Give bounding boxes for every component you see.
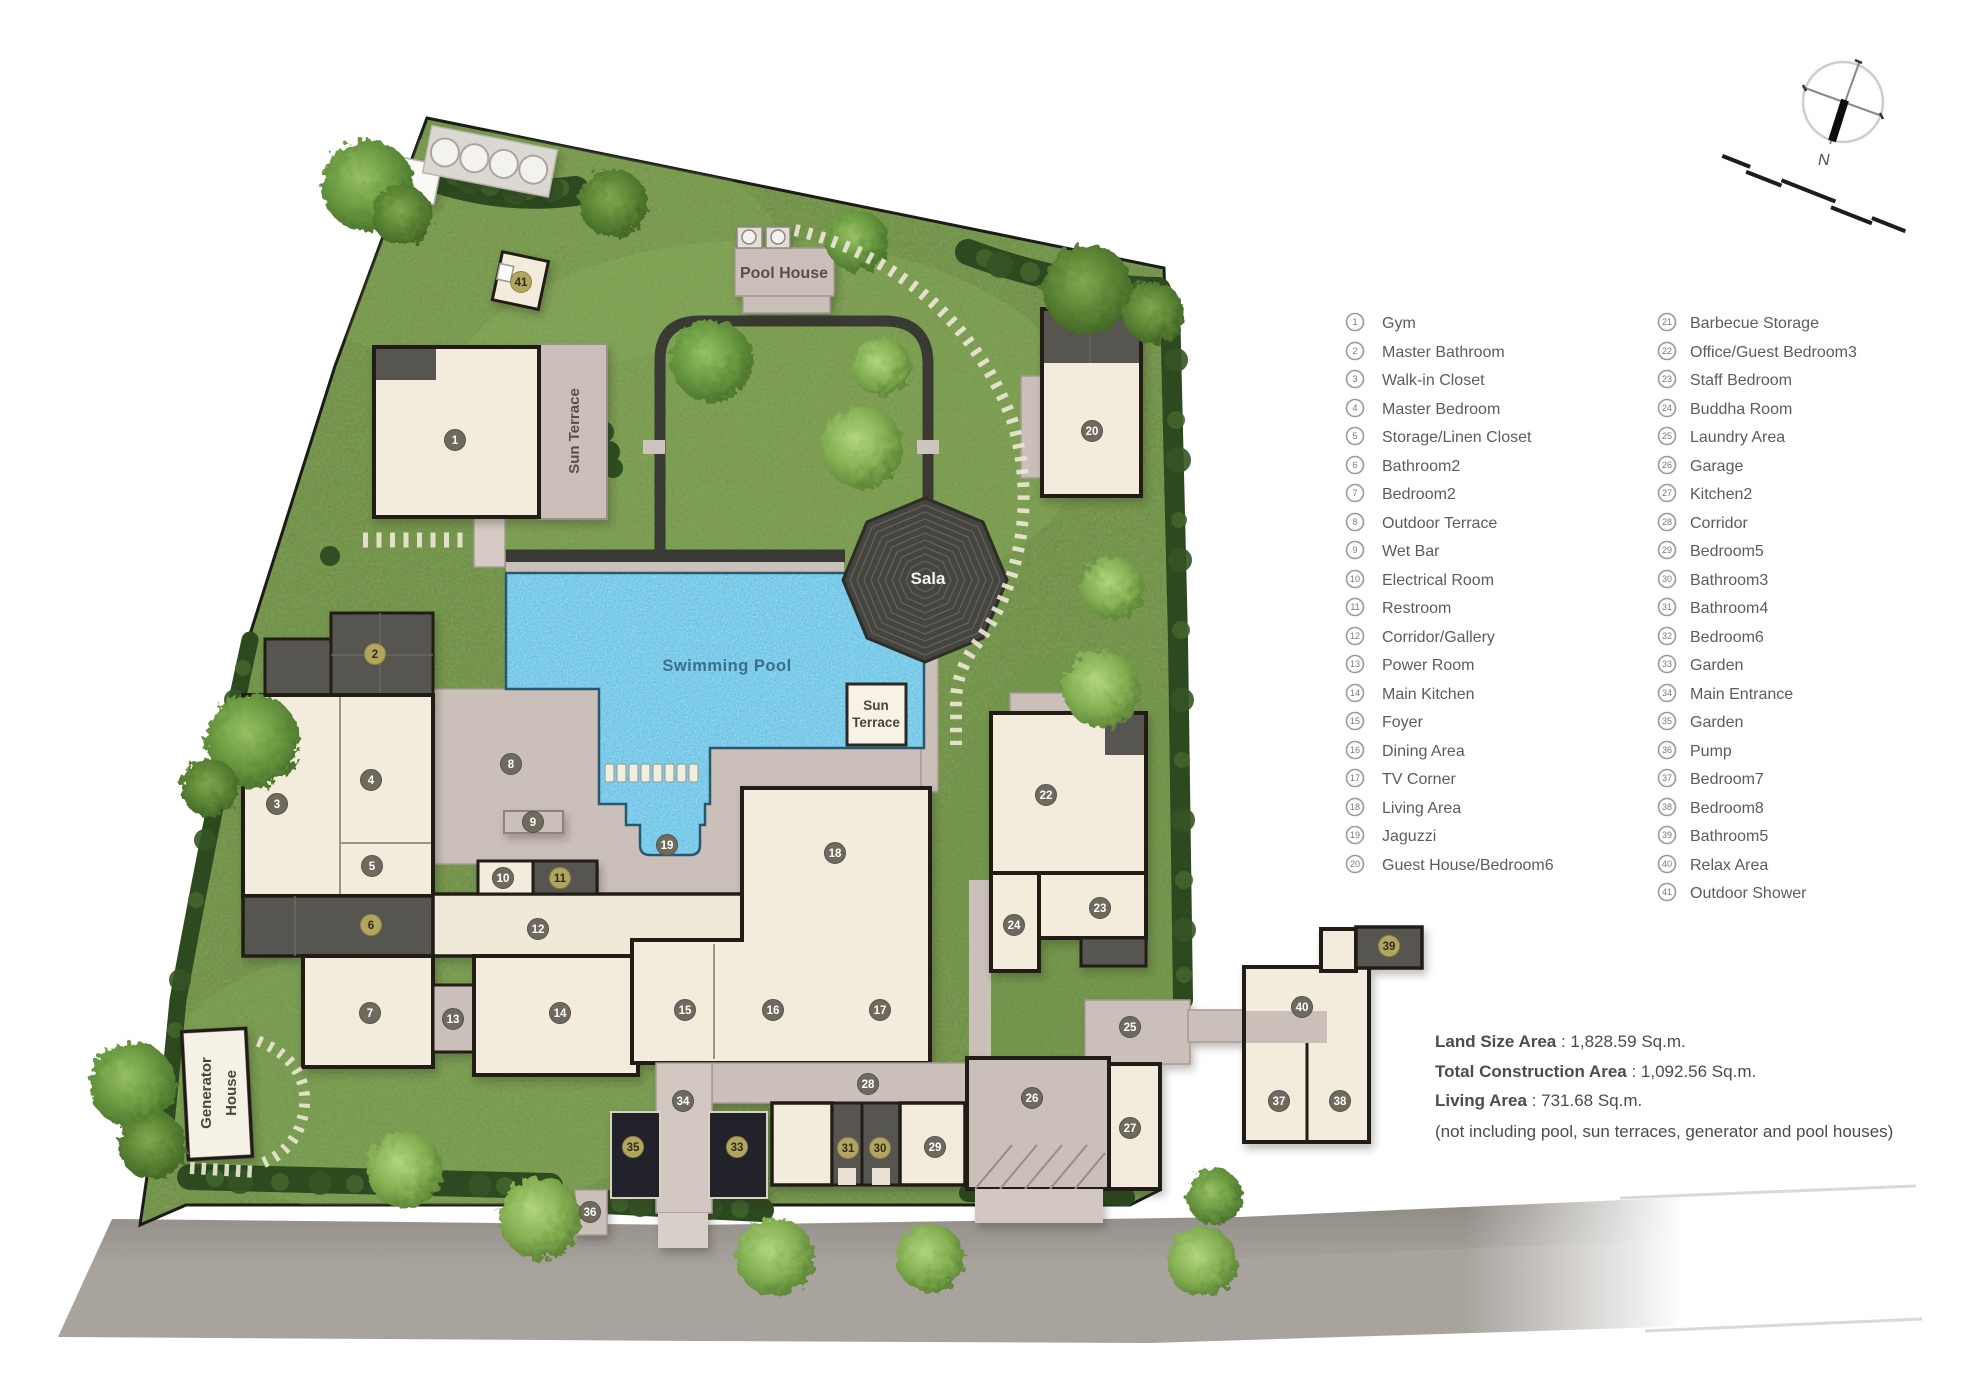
svg-text:Bathroom2: Bathroom2 (1382, 458, 1460, 475)
svg-text:Bathroom3: Bathroom3 (1690, 572, 1768, 589)
svg-text:Storage/Linen Closet: Storage/Linen Closet (1382, 429, 1532, 446)
svg-text:15: 15 (679, 1005, 692, 1017)
svg-text:Staff Bedroom: Staff Bedroom (1690, 372, 1792, 389)
svg-text:25: 25 (1662, 431, 1672, 441)
svg-text:2: 2 (372, 649, 378, 661)
svg-text:38: 38 (1662, 802, 1672, 812)
svg-text:33: 33 (731, 1142, 744, 1154)
svg-text:7: 7 (1352, 488, 1357, 498)
svg-text:Office/Guest Bedroom3: Office/Guest Bedroom3 (1690, 344, 1857, 361)
svg-text:Garden: Garden (1690, 714, 1743, 731)
svg-text:5: 5 (369, 861, 376, 873)
svg-text:Bedroom8: Bedroom8 (1690, 800, 1764, 817)
svg-text:26: 26 (1662, 460, 1672, 470)
svg-text:Master Bedroom: Master Bedroom (1382, 401, 1500, 418)
svg-text:37: 37 (1273, 1096, 1286, 1108)
svg-text:18: 18 (829, 848, 842, 860)
svg-text:37: 37 (1662, 773, 1672, 783)
svg-text:2: 2 (1352, 346, 1357, 356)
svg-text:Land Size Area : 1,828.59 Sq.m: Land Size Area : 1,828.59 Sq.m. (1435, 1032, 1686, 1051)
svg-text:Pool House: Pool House (740, 265, 828, 282)
svg-text:10: 10 (1350, 574, 1360, 584)
svg-text:6: 6 (368, 920, 374, 932)
svg-text:Gym: Gym (1382, 315, 1416, 332)
svg-text:Pump: Pump (1690, 743, 1732, 760)
svg-text:11: 11 (554, 873, 567, 885)
svg-text:16: 16 (767, 1005, 780, 1017)
svg-text:Sala: Sala (911, 569, 947, 588)
svg-text:35: 35 (627, 1142, 640, 1154)
svg-text:Bathroom4: Bathroom4 (1690, 600, 1768, 617)
svg-text:28: 28 (862, 1079, 875, 1091)
svg-text:23: 23 (1662, 374, 1672, 384)
svg-text:6: 6 (1352, 460, 1357, 470)
svg-text:9: 9 (530, 817, 536, 829)
svg-text:Kitchen2: Kitchen2 (1690, 486, 1752, 503)
svg-text:Jaguzzi: Jaguzzi (1382, 828, 1436, 845)
svg-text:Restroom: Restroom (1382, 600, 1451, 617)
svg-text:Foyer: Foyer (1382, 714, 1424, 731)
svg-text:27: 27 (1662, 488, 1672, 498)
svg-text:Master Bathroom: Master Bathroom (1382, 344, 1505, 361)
svg-text:27: 27 (1124, 1123, 1137, 1135)
svg-text:4: 4 (368, 775, 375, 787)
svg-text:24: 24 (1662, 403, 1672, 413)
svg-text:34: 34 (677, 1096, 690, 1108)
svg-text:17: 17 (1350, 773, 1360, 783)
svg-text:12: 12 (1350, 631, 1360, 641)
svg-text:Bedroom2: Bedroom2 (1382, 486, 1456, 503)
svg-text:28: 28 (1662, 517, 1672, 527)
svg-text:House: House (223, 1070, 240, 1116)
svg-text:9: 9 (1352, 545, 1357, 555)
svg-text:18: 18 (1350, 802, 1360, 812)
svg-text:41: 41 (515, 277, 528, 289)
svg-text:Total Construction Area : 1,09: Total Construction Area : 1,092.56 Sq.m. (1435, 1062, 1756, 1081)
svg-text:34: 34 (1662, 688, 1672, 698)
svg-text:Outdoor Shower: Outdoor Shower (1690, 885, 1807, 902)
svg-text:14: 14 (1350, 688, 1360, 698)
svg-text:Electrical Room: Electrical Room (1382, 572, 1494, 589)
svg-text:Living Area: Living Area (1382, 800, 1461, 817)
svg-text:Swimming Pool: Swimming Pool (662, 657, 791, 675)
svg-text:Walk-in Closet: Walk-in Closet (1382, 372, 1485, 389)
svg-text:3: 3 (274, 799, 280, 811)
svg-text:Living Area : 731.68 Sq.m.: Living Area : 731.68 Sq.m. (1435, 1091, 1642, 1110)
svg-text:33: 33 (1662, 659, 1672, 669)
svg-text:15: 15 (1350, 716, 1360, 726)
svg-text:39: 39 (1662, 830, 1672, 840)
svg-text:Generator: Generator (198, 1057, 215, 1129)
svg-text:Bedroom6: Bedroom6 (1690, 629, 1764, 646)
svg-text:TV Corner: TV Corner (1382, 771, 1456, 788)
svg-text:Laundry Area: Laundry Area (1690, 429, 1785, 446)
svg-text:23: 23 (1094, 903, 1107, 915)
svg-text:19: 19 (661, 840, 674, 852)
svg-text:22: 22 (1662, 346, 1672, 356)
svg-text:1: 1 (1352, 317, 1357, 327)
svg-text:20: 20 (1350, 859, 1360, 869)
svg-text:Sun: Sun (863, 698, 889, 713)
svg-text:Main Entrance: Main Entrance (1690, 686, 1793, 703)
svg-text:31: 31 (1662, 602, 1672, 612)
svg-text:16: 16 (1350, 745, 1360, 755)
svg-text:25: 25 (1124, 1022, 1137, 1034)
svg-text:Wet Bar: Wet Bar (1382, 543, 1440, 560)
svg-text:17: 17 (874, 1005, 887, 1017)
svg-text:Bathroom5: Bathroom5 (1690, 828, 1768, 845)
svg-text:N: N (1818, 152, 1830, 169)
svg-text:1: 1 (452, 435, 459, 447)
svg-text:Sun Terrace: Sun Terrace (566, 388, 583, 474)
svg-text:14: 14 (554, 1008, 567, 1020)
svg-text:Terrace: Terrace (852, 715, 900, 730)
svg-text:Dining Area: Dining Area (1382, 743, 1465, 760)
svg-text:Buddha Room: Buddha Room (1690, 401, 1792, 418)
svg-text:3: 3 (1352, 374, 1357, 384)
svg-text:40: 40 (1662, 859, 1672, 869)
svg-text:Corridor: Corridor (1690, 515, 1748, 532)
svg-text:29: 29 (1662, 545, 1672, 555)
svg-text:31: 31 (842, 1143, 855, 1155)
svg-text:Power Room: Power Room (1382, 657, 1474, 674)
svg-text:38: 38 (1334, 1096, 1347, 1108)
svg-text:8: 8 (508, 759, 515, 771)
svg-text:4: 4 (1352, 403, 1357, 413)
svg-text:Garden: Garden (1690, 657, 1743, 674)
svg-text:11: 11 (1350, 602, 1359, 612)
svg-text:13: 13 (447, 1014, 460, 1026)
svg-text:(not including pool, sun terra: (not including pool, sun terraces, gener… (1435, 1122, 1893, 1141)
svg-text:Main Kitchen: Main Kitchen (1382, 686, 1475, 703)
svg-text:36: 36 (1662, 745, 1672, 755)
svg-text:30: 30 (874, 1143, 887, 1155)
svg-text:8: 8 (1352, 517, 1357, 527)
svg-text:21: 21 (1662, 317, 1672, 327)
svg-text:Guest House/Bedroom6: Guest House/Bedroom6 (1382, 857, 1554, 874)
svg-text:5: 5 (1352, 431, 1357, 441)
svg-text:Bedroom5: Bedroom5 (1690, 543, 1764, 560)
svg-text:22: 22 (1040, 790, 1053, 802)
svg-text:40: 40 (1296, 1002, 1309, 1014)
svg-text:32: 32 (1662, 631, 1672, 641)
svg-text:41: 41 (1662, 887, 1672, 897)
svg-text:39: 39 (1383, 941, 1396, 953)
svg-text:12: 12 (532, 924, 545, 936)
svg-text:30: 30 (1662, 574, 1672, 584)
svg-text:26: 26 (1026, 1093, 1039, 1105)
svg-text:36: 36 (584, 1207, 597, 1219)
svg-text:20: 20 (1086, 426, 1099, 438)
svg-text:Relax Area: Relax Area (1690, 857, 1768, 874)
svg-text:35: 35 (1662, 716, 1672, 726)
svg-text:Outdoor Terrace: Outdoor Terrace (1382, 515, 1497, 532)
svg-text:24: 24 (1008, 920, 1021, 932)
svg-text:19: 19 (1350, 830, 1360, 840)
svg-text:Garage: Garage (1690, 458, 1743, 475)
svg-text:13: 13 (1350, 659, 1360, 669)
svg-text:Barbecue Storage: Barbecue Storage (1690, 315, 1819, 332)
svg-text:Corridor/Gallery: Corridor/Gallery (1382, 629, 1495, 646)
svg-text:7: 7 (367, 1008, 373, 1020)
svg-text:29: 29 (929, 1142, 942, 1154)
svg-text:10: 10 (497, 873, 510, 885)
svg-text:Bedroom7: Bedroom7 (1690, 771, 1764, 788)
